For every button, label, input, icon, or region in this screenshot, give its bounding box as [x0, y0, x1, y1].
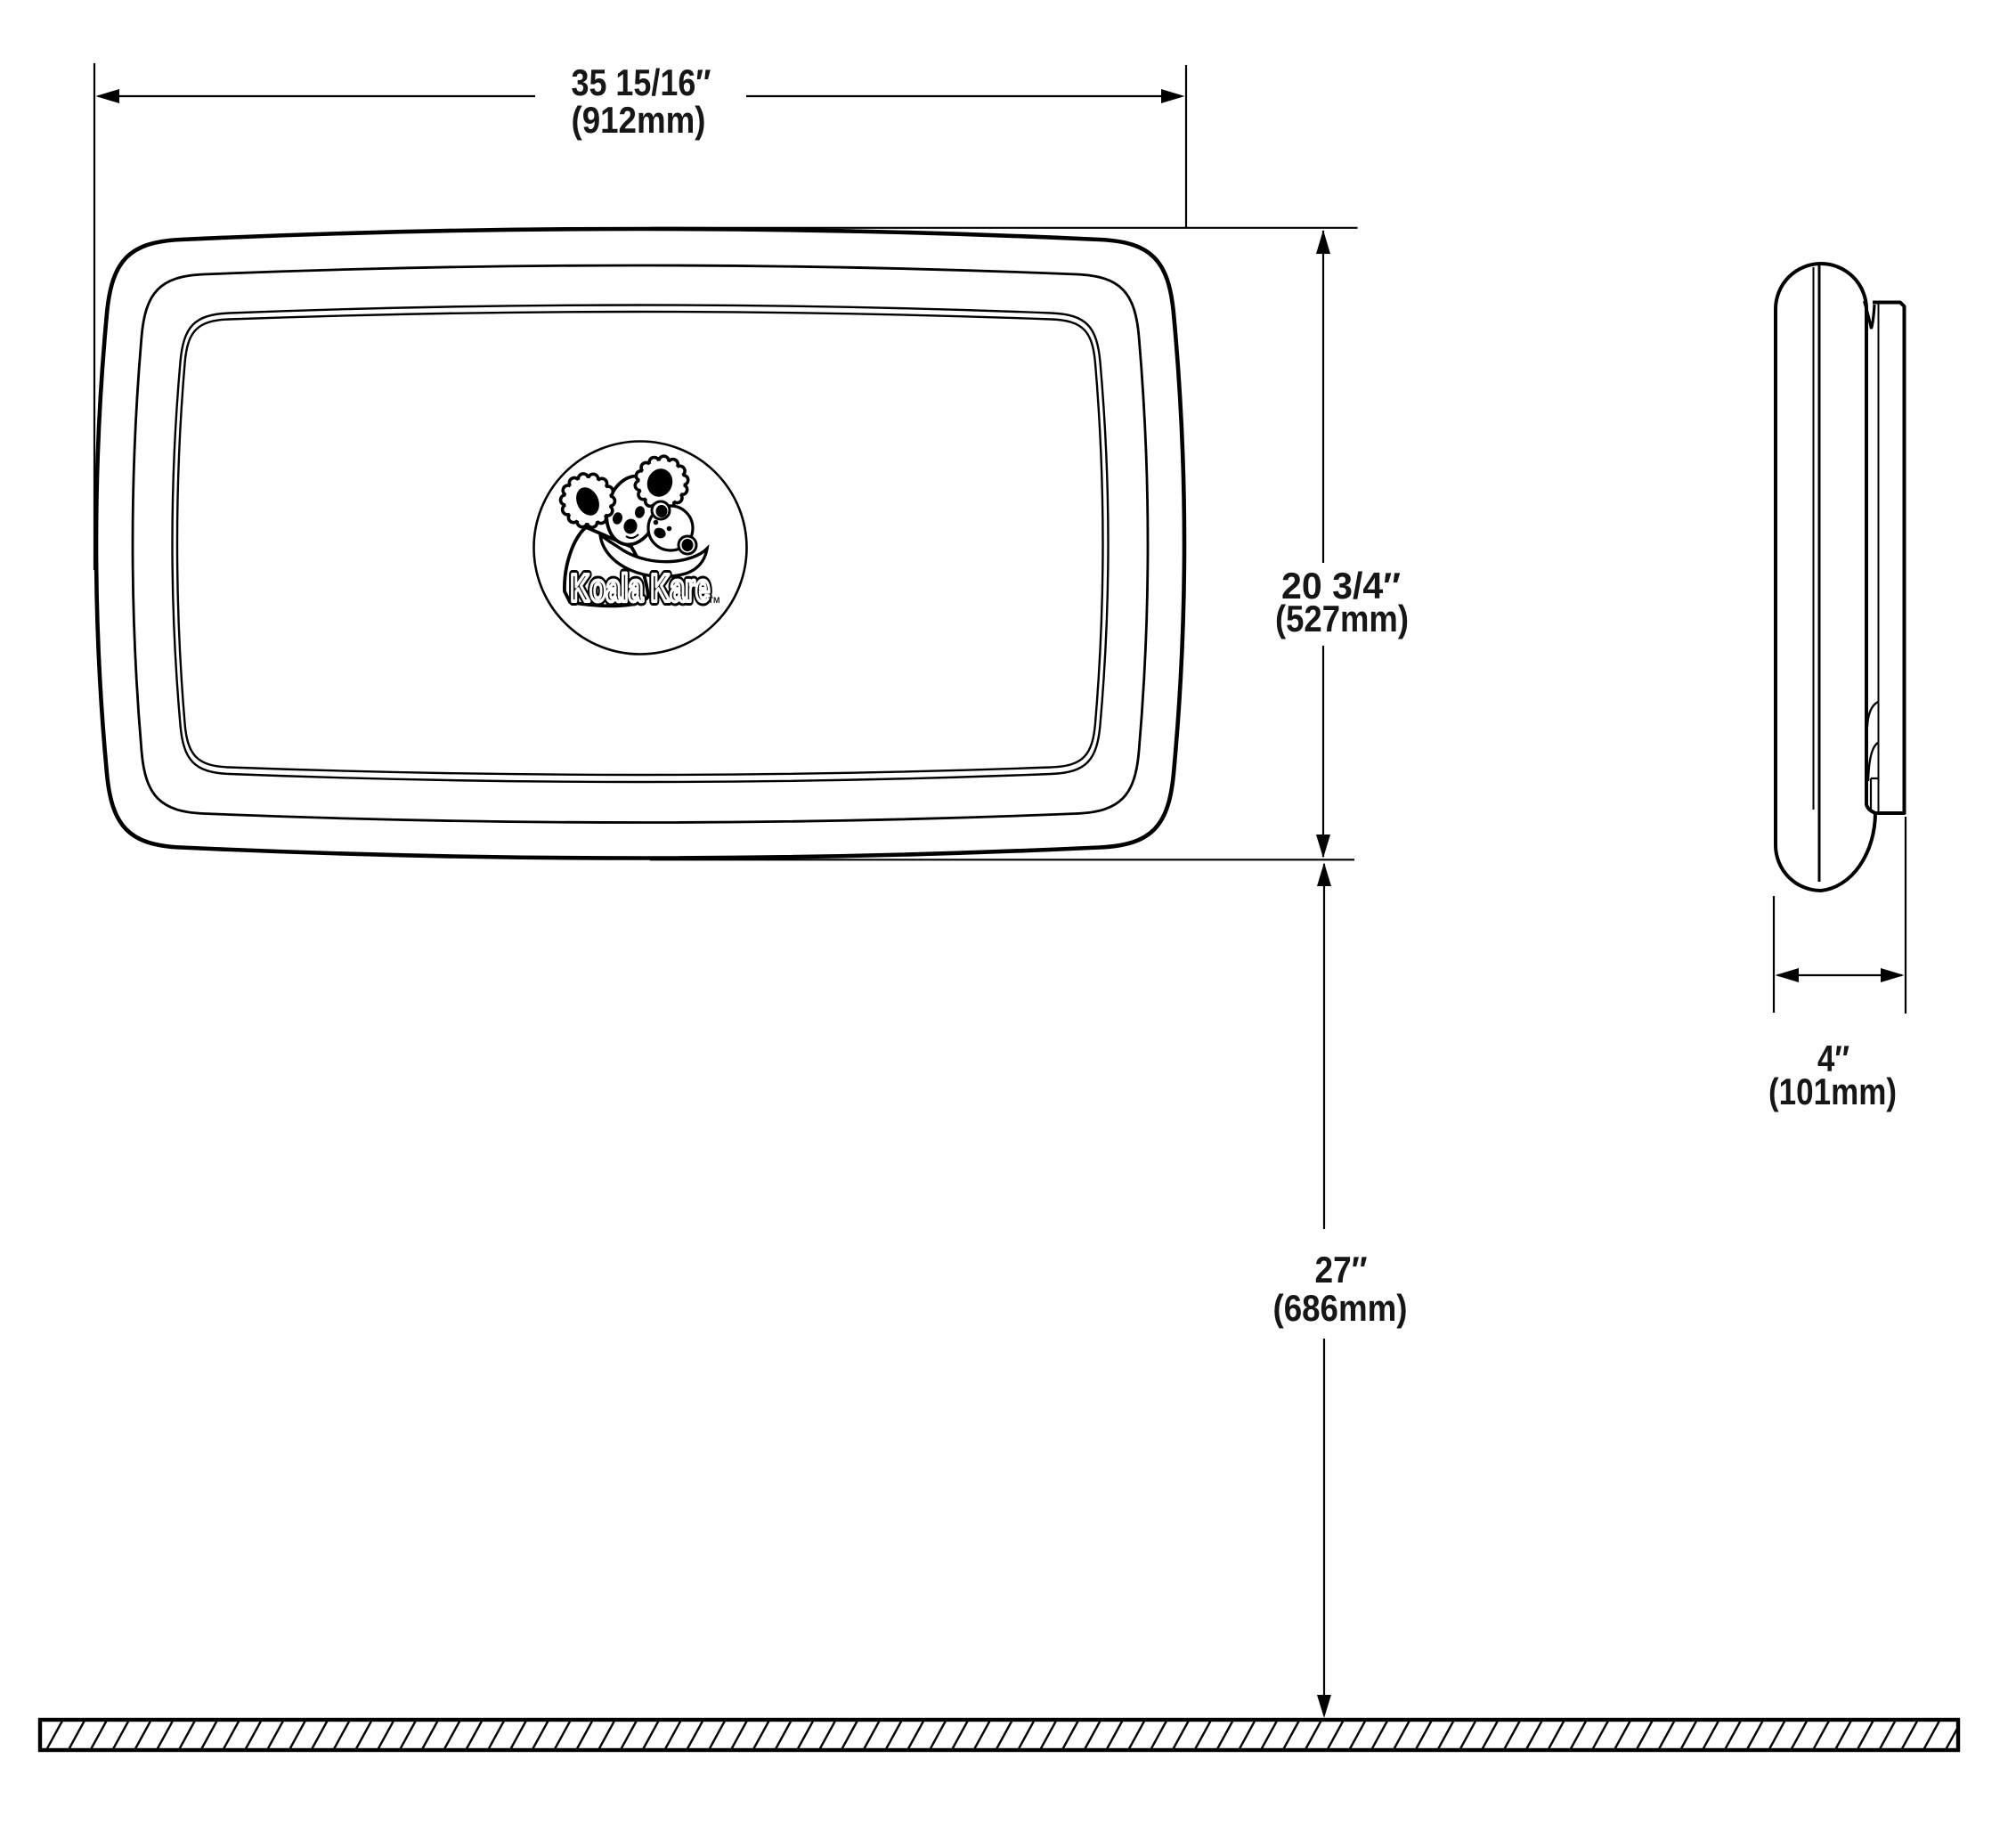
svg-text:(912mm): (912mm) — [572, 99, 706, 141]
svg-text:(101mm): (101mm) — [1768, 1071, 1897, 1112]
svg-text:TM: TM — [709, 596, 720, 605]
svg-text:(527mm): (527mm) — [1275, 598, 1409, 639]
svg-text:Koala Kare: Koala Kare — [571, 566, 711, 610]
svg-text:27″: 27″ — [1315, 1249, 1368, 1291]
svg-text:(686mm): (686mm) — [1273, 1287, 1408, 1329]
svg-text:35 15/16″: 35 15/16″ — [572, 61, 711, 103]
